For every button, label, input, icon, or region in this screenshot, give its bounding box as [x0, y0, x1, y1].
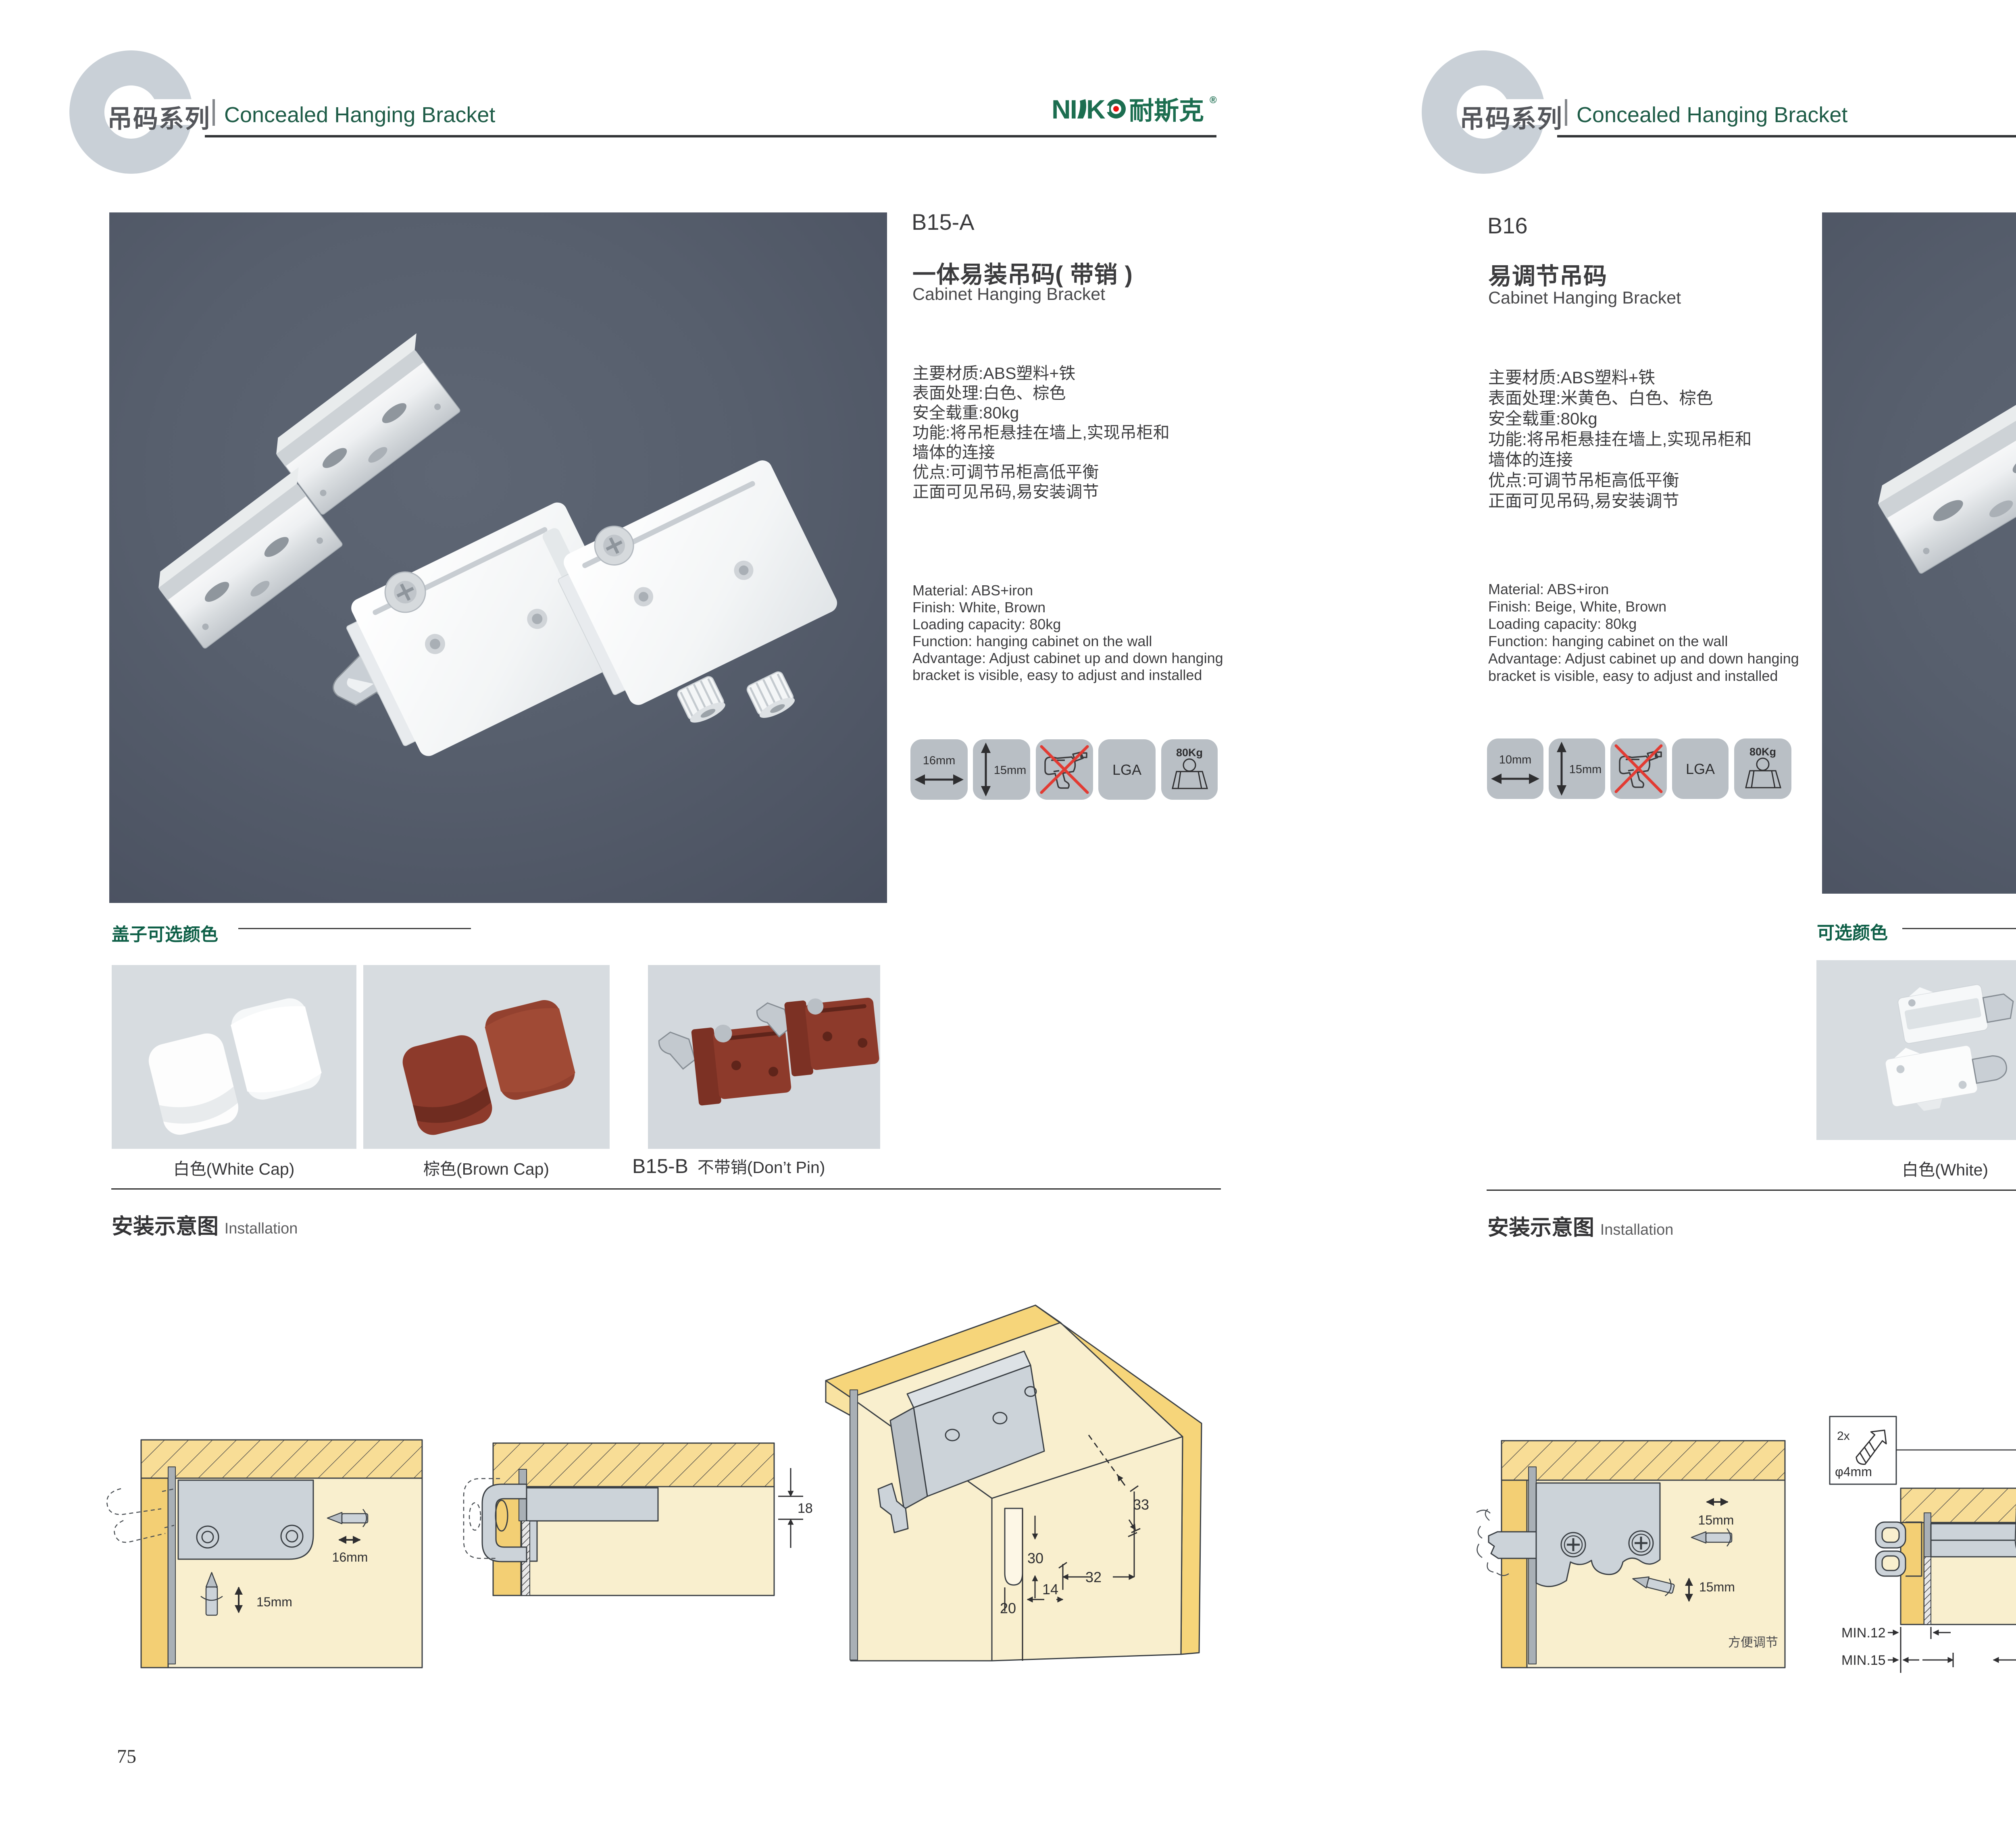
svg-text:16mm: 16mm: [923, 754, 956, 767]
svg-text:2x: 2x: [1837, 1429, 1850, 1443]
svg-text:80Kg: 80Kg: [1176, 747, 1203, 759]
svg-text:30: 30: [1027, 1550, 1043, 1566]
svg-text:15mm: 15mm: [1569, 763, 1602, 776]
svg-text:MIN.15: MIN.15: [1841, 1653, 1886, 1668]
svg-text:33: 33: [1133, 1496, 1149, 1513]
svg-text:K: K: [1086, 94, 1106, 124]
svg-text:15mm: 15mm: [256, 1595, 292, 1609]
svg-text:®: ®: [1210, 95, 1217, 106]
svg-text:方便调节: 方便调节: [1728, 1635, 1778, 1649]
svg-text:32: 32: [1085, 1569, 1102, 1585]
svg-text:10mm: 10mm: [1499, 753, 1532, 766]
svg-text:16mm: 16mm: [332, 1550, 368, 1564]
svg-text:15mm: 15mm: [1698, 1513, 1734, 1527]
svg-text:NI: NI: [1052, 94, 1077, 124]
svg-text:20: 20: [1000, 1600, 1016, 1616]
svg-text:14: 14: [1042, 1581, 1058, 1597]
svg-text:15mm: 15mm: [1699, 1580, 1735, 1594]
svg-text:耐斯克: 耐斯克: [1129, 97, 1204, 125]
svg-text:φ4mm: φ4mm: [1835, 1464, 1872, 1479]
svg-text:18: 18: [798, 1501, 813, 1516]
svg-text:LGA: LGA: [1112, 761, 1141, 778]
svg-text:15mm: 15mm: [994, 764, 1027, 777]
svg-text:LGA: LGA: [1686, 761, 1715, 777]
svg-text:MIN.12: MIN.12: [1841, 1625, 1886, 1641]
svg-text:80Kg: 80Kg: [1749, 746, 1776, 758]
